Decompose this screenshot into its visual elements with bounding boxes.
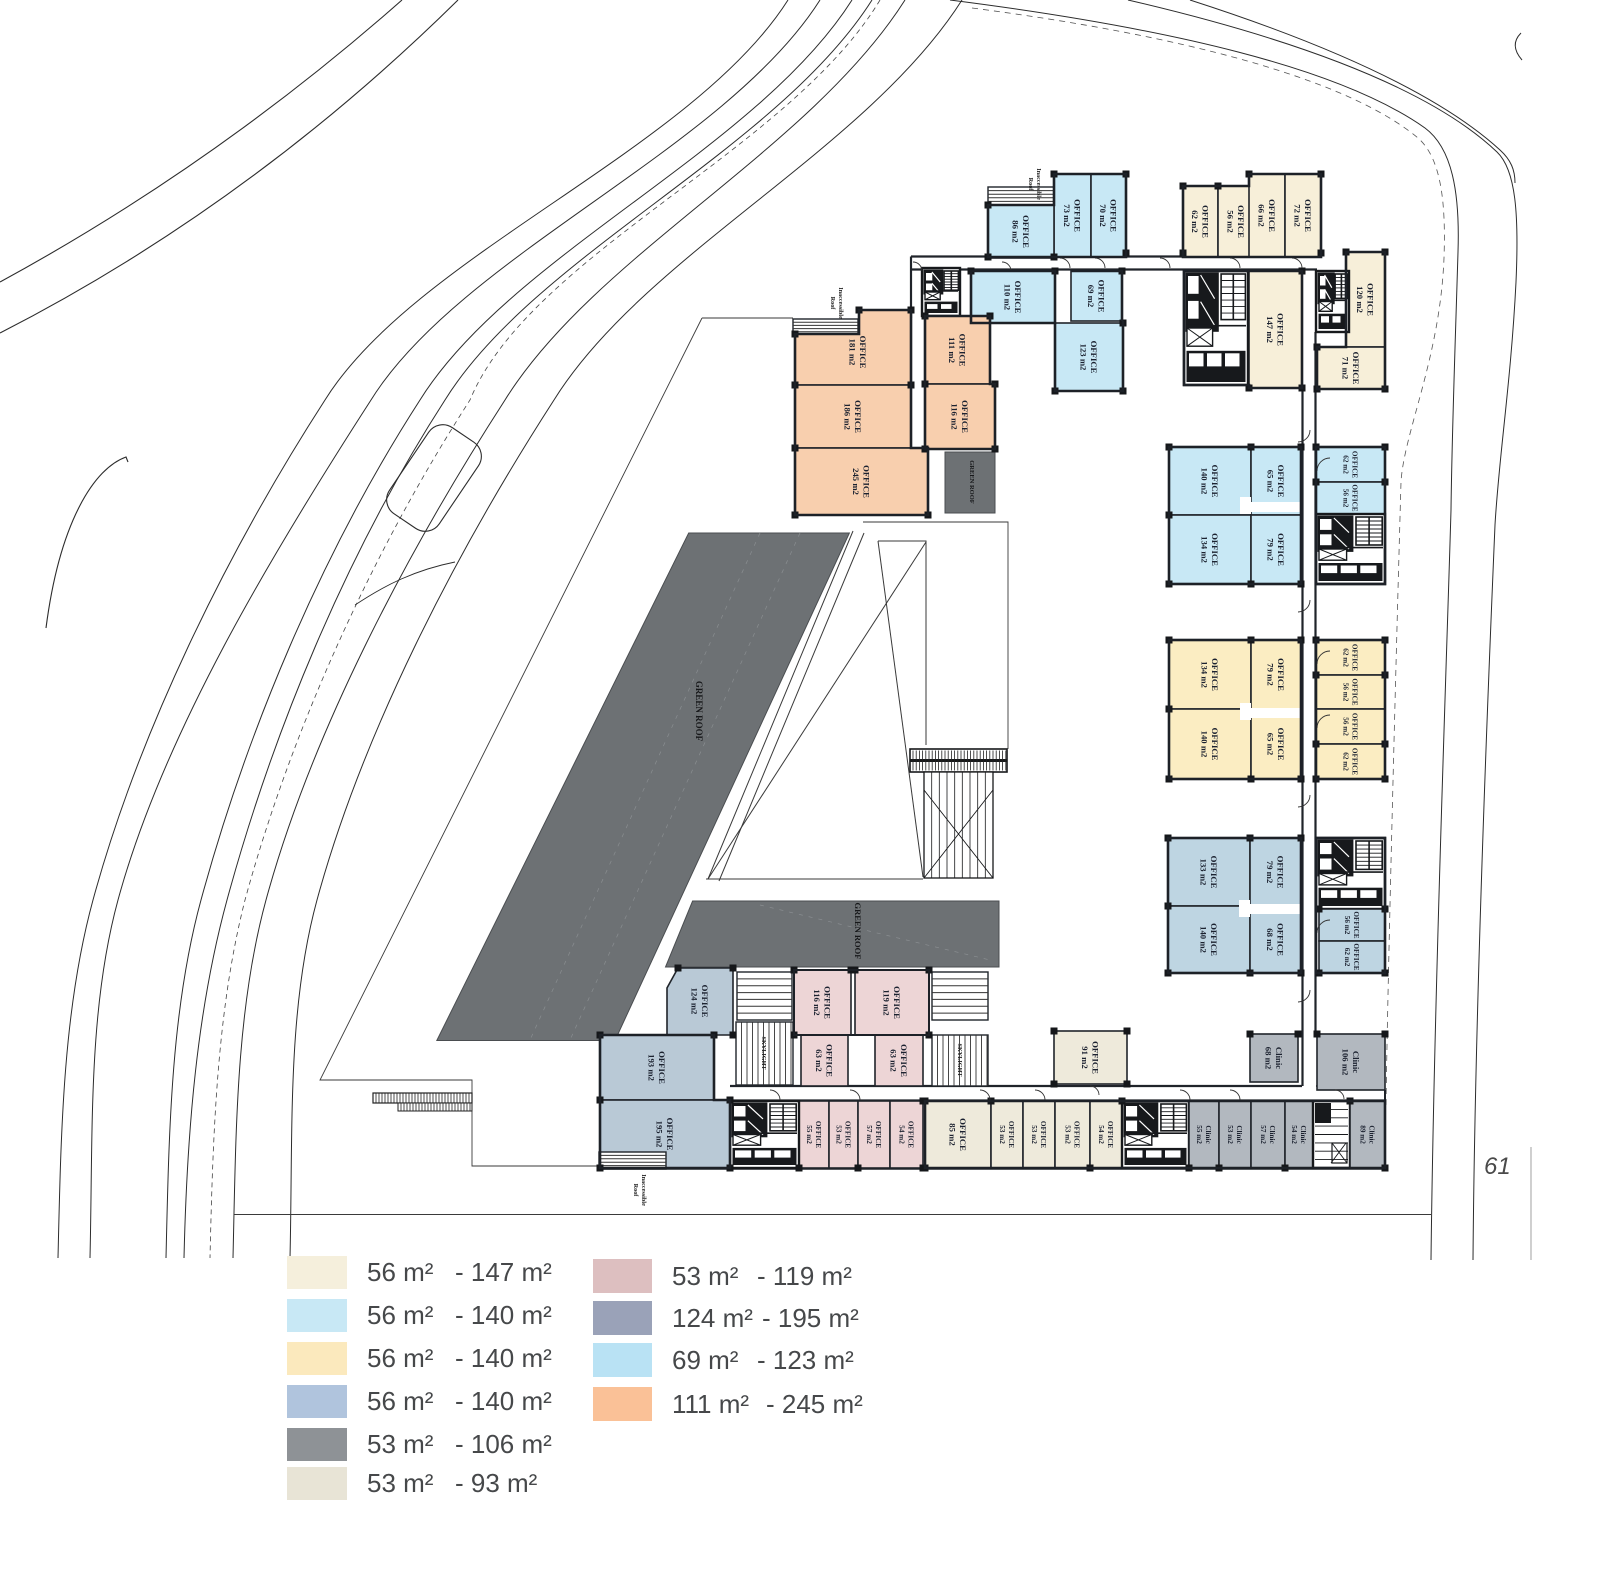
svg-text:111 m²: 111 m²: [672, 1389, 749, 1419]
svg-text:OFFICE195 m2: OFFICE195 m2: [654, 1118, 675, 1151]
svg-text:56 m²: 56 m²: [367, 1257, 434, 1287]
svg-text:OFFICE140 m2: OFFICE140 m2: [1199, 465, 1220, 498]
svg-text:OFFICE186 m2: OFFICE186 m2: [842, 400, 863, 433]
svg-text:- 123 m²: - 123 m²: [757, 1345, 854, 1375]
svg-text:SKYLIGHT: SKYLIGHT: [760, 1036, 767, 1070]
svg-text:OFFICE124 m2: OFFICE124 m2: [689, 985, 710, 1018]
svg-text:- 140 m²: - 140 m²: [455, 1300, 552, 1330]
svg-text:OFFICE116 m2: OFFICE116 m2: [949, 400, 970, 433]
svg-text:56 m²: 56 m²: [367, 1300, 434, 1330]
svg-text:53 m²: 53 m²: [367, 1429, 434, 1459]
svg-text:OFFICE119 m2: OFFICE119 m2: [881, 986, 902, 1019]
svg-text:OFFICE245 m2: OFFICE245 m2: [851, 465, 872, 498]
svg-text:OFFICE134 m2: OFFICE134 m2: [1199, 533, 1220, 566]
svg-text:OFFICE123 m2: OFFICE123 m2: [1078, 341, 1099, 374]
svg-text:OFFICE134 m2: OFFICE134 m2: [1199, 658, 1220, 691]
svg-text:OFFICE193 m2: OFFICE193 m2: [646, 1051, 667, 1084]
svg-text:OFFICE116 m2: OFFICE116 m2: [812, 986, 833, 1019]
svg-text:GREEN ROOF: GREEN ROOF: [694, 681, 704, 742]
svg-text:OFFICE140 m2: OFFICE140 m2: [1199, 728, 1220, 761]
svg-text:Clinic89 m2: Clinic89 m2: [1358, 1125, 1375, 1144]
svg-text:69 m²: 69 m²: [672, 1345, 739, 1375]
svg-text:Clinic55 m2: Clinic55 m2: [1195, 1125, 1212, 1144]
svg-text:OFFICE111 m2: OFFICE111 m2: [947, 334, 968, 367]
svg-text:- 106 m²: - 106 m²: [455, 1429, 552, 1459]
svg-text:- 245 m²: - 245 m²: [766, 1389, 863, 1419]
svg-text:OFFICE140 m2: OFFICE140 m2: [1198, 923, 1219, 956]
svg-text:61: 61: [1484, 1153, 1511, 1180]
svg-text:- 140 m²: - 140 m²: [455, 1386, 552, 1416]
svg-text:OFFICE133 m2: OFFICE133 m2: [1198, 856, 1219, 889]
svg-text:GREEN ROOF: GREEN ROOF: [853, 903, 863, 960]
svg-text:OFFICE120 m2: OFFICE120 m2: [1355, 283, 1376, 316]
svg-text:124 m²: 124 m²: [672, 1303, 753, 1333]
svg-text:Clinic57 m2: Clinic57 m2: [1259, 1125, 1276, 1144]
svg-text:- 119 m²: - 119 m²: [757, 1261, 852, 1291]
svg-text:- 195 m²: - 195 m²: [762, 1303, 859, 1333]
svg-text:OFFICE181 m2: OFFICE181 m2: [847, 336, 868, 369]
svg-text:GREEN ROOF: GREEN ROOF: [968, 460, 975, 504]
svg-text:SKYLIGHT: SKYLIGHT: [956, 1043, 963, 1077]
svg-text:- 140 m²: - 140 m²: [455, 1343, 552, 1373]
svg-text:56 m²: 56 m²: [367, 1343, 434, 1373]
svg-text:Clinic53 m2: Clinic53 m2: [1226, 1125, 1243, 1144]
svg-text:OFFICE110 m2: OFFICE110 m2: [1002, 281, 1023, 314]
svg-text:- 147 m²: - 147 m²: [455, 1257, 552, 1287]
svg-text:56 m²: 56 m²: [367, 1386, 434, 1416]
svg-text:Clinic68 m2: Clinic68 m2: [1263, 1047, 1284, 1069]
svg-text:- 93 m²: - 93 m²: [455, 1468, 538, 1498]
svg-text:Clinic106 m2: Clinic106 m2: [1340, 1049, 1361, 1076]
svg-text:53 m²: 53 m²: [367, 1468, 434, 1498]
svg-text:53 m²: 53 m²: [672, 1261, 739, 1291]
svg-text:Clinic54 m2: Clinic54 m2: [1290, 1125, 1307, 1144]
svg-text:OFFICE147 m2: OFFICE147 m2: [1265, 313, 1286, 346]
